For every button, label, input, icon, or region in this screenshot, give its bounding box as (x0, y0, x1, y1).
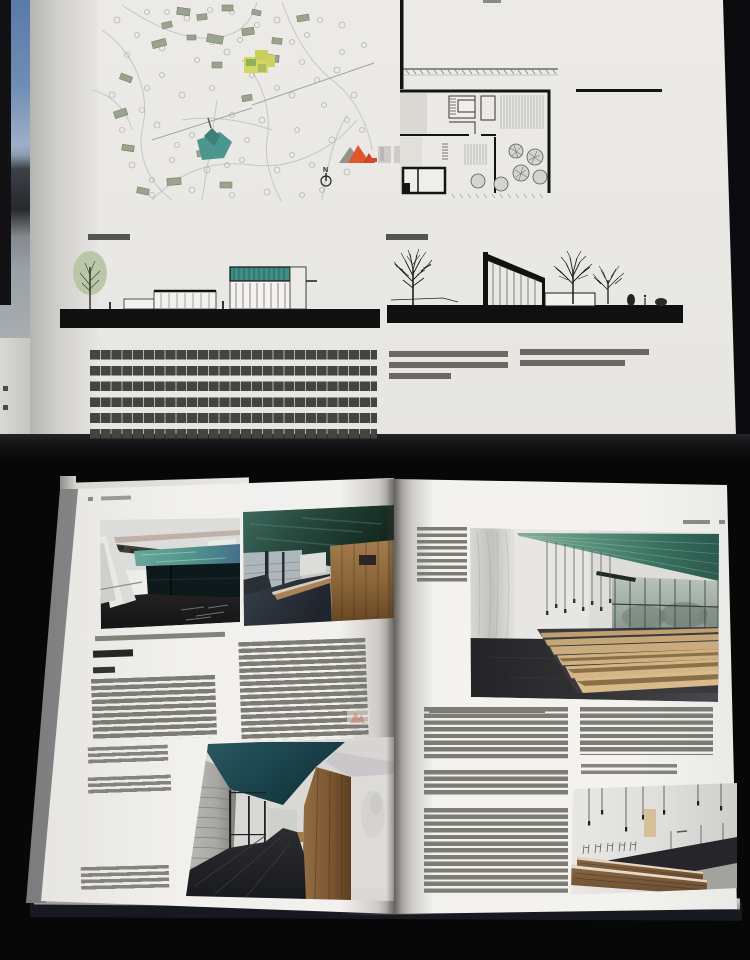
svg-text:N: N (323, 167, 328, 174)
